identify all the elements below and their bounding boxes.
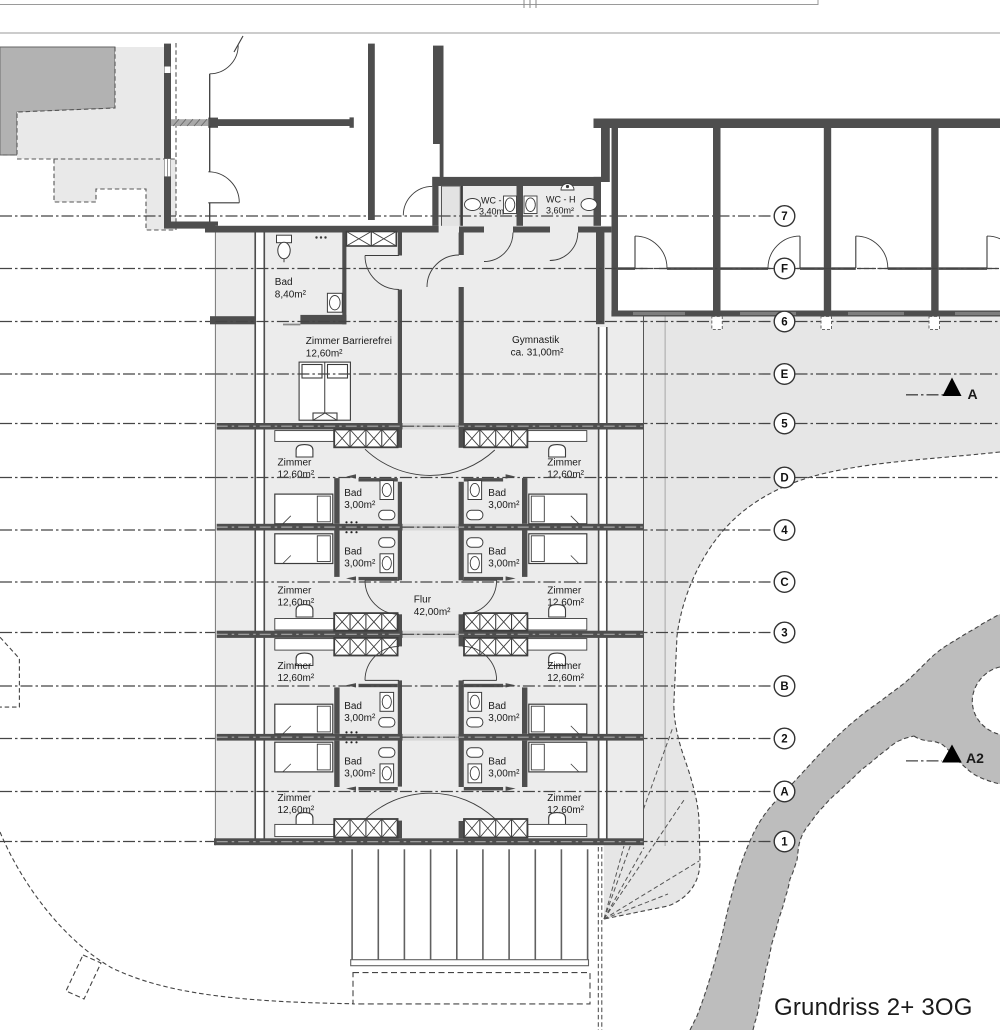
svg-text:Bad: Bad (488, 547, 506, 558)
svg-text:3,00m²: 3,00m² (488, 713, 520, 724)
svg-text:Bad: Bad (344, 547, 362, 558)
svg-text:1: 1 (781, 837, 788, 849)
svg-text:ca. 31,00m²: ca. 31,00m² (511, 348, 564, 359)
svg-text:B: B (780, 681, 788, 693)
svg-text:Zimmer: Zimmer (547, 661, 582, 672)
svg-text:Bad: Bad (488, 488, 506, 499)
svg-text:12,60m²: 12,60m² (547, 470, 584, 481)
svg-text:A2: A2 (966, 750, 984, 766)
svg-text:Zimmer Barrierefrei: Zimmer Barrierefrei (306, 336, 392, 347)
svg-text:5: 5 (781, 419, 788, 431)
svg-text:Zimmer: Zimmer (547, 458, 582, 469)
svg-text:Grundriss 2+ 3OG: Grundriss 2+ 3OG (774, 994, 973, 1021)
svg-text:3,00m²: 3,00m² (344, 713, 376, 724)
svg-text:Gymnastik: Gymnastik (512, 335, 560, 346)
svg-text:Bad: Bad (344, 488, 362, 499)
svg-text:F: F (781, 264, 788, 276)
svg-text:Bad: Bad (488, 701, 506, 712)
svg-text:42,00m²: 42,00m² (414, 607, 451, 618)
svg-text:Zimmer: Zimmer (547, 793, 582, 804)
svg-text:3,00m²: 3,00m² (488, 559, 520, 570)
svg-text:Zimmer: Zimmer (547, 586, 582, 597)
svg-text:A: A (968, 386, 978, 402)
svg-text:Bad: Bad (275, 277, 293, 288)
svg-text:2: 2 (781, 734, 787, 746)
svg-text:E: E (781, 369, 789, 381)
svg-text:D: D (780, 473, 788, 485)
svg-text:12,60m²: 12,60m² (278, 673, 315, 684)
svg-text:Flur: Flur (414, 595, 432, 606)
svg-text:6: 6 (781, 317, 787, 329)
svg-text:3,00m²: 3,00m² (488, 500, 520, 511)
svg-text:A: A (780, 787, 788, 799)
svg-text:3: 3 (781, 628, 787, 640)
svg-text:WC - H: WC - H (546, 195, 576, 205)
svg-text:12,60m²: 12,60m² (547, 673, 584, 684)
svg-text:8,40m²: 8,40m² (275, 290, 307, 301)
svg-text:3,00m²: 3,00m² (344, 769, 376, 780)
svg-text:3,60m²: 3,60m² (546, 206, 574, 216)
svg-text:Zimmer: Zimmer (278, 586, 313, 597)
svg-text:Zimmer: Zimmer (278, 793, 313, 804)
svg-text:4: 4 (781, 525, 788, 537)
svg-text:Zimmer: Zimmer (278, 661, 313, 672)
svg-text:C: C (780, 577, 788, 589)
svg-text:3,40m²: 3,40m² (479, 207, 507, 217)
svg-text:Zimmer: Zimmer (278, 458, 313, 469)
svg-text:Bad: Bad (488, 757, 506, 768)
svg-text:Bad: Bad (344, 701, 362, 712)
svg-text:3,00m²: 3,00m² (344, 559, 376, 570)
svg-text:7: 7 (781, 211, 787, 223)
svg-text:12,60m²: 12,60m² (306, 349, 343, 360)
svg-text:12,60m²: 12,60m² (278, 470, 315, 481)
svg-text:Bad: Bad (344, 757, 362, 768)
svg-text:3,00m²: 3,00m² (488, 769, 520, 780)
svg-text:3,00m²: 3,00m² (344, 500, 376, 511)
